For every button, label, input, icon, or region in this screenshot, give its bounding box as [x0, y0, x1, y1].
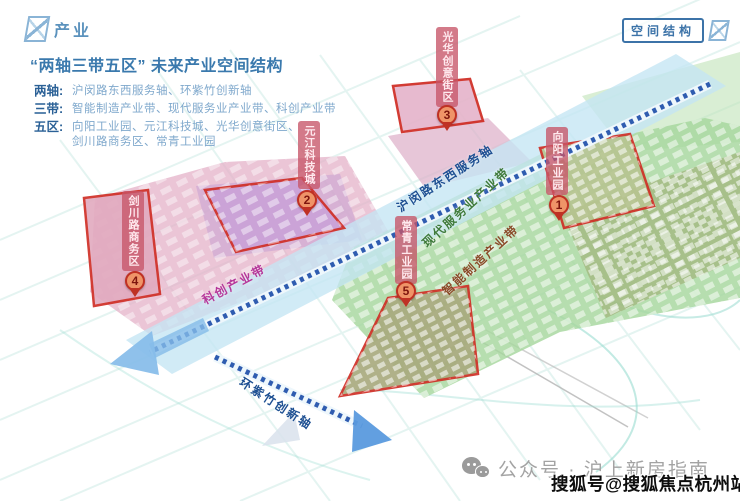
innovation-axis-arrowhead: [352, 410, 392, 452]
brand-logo-icon: [24, 16, 51, 42]
legend-row-zones: 五区: 向阳工业园、元江科技城、光华创意街区、 剑川路商务区、常青工业园: [34, 120, 336, 150]
zone-callout-yuanjiang: 元江科技城: [298, 121, 320, 189]
zone-callout-guanghua: 光华创意街区: [436, 27, 458, 107]
legend-label-belts: 三带:: [34, 102, 72, 117]
zone-callout-xiangyang: 向阳工业园: [546, 127, 568, 195]
zone-callout-changqing: 常青工业园: [395, 216, 417, 284]
legend-text-zones-line1: 向阳工业园、元江科技城、光华创意街区、: [72, 121, 300, 133]
brand-logo-text: 产业: [54, 17, 92, 41]
legend: 两轴: 沪闵路东西服务轴、环紫竹创新轴 三带: 智能制造产业带、现代服务业产业带…: [34, 84, 336, 153]
legend-text-zones-line2: 剑川路商务区、常青工业园: [72, 136, 216, 148]
legend-text-belts: 智能制造产业带、现代服务业产业带、科创产业带: [72, 102, 336, 117]
legend-text-zones: 向阳工业园、元江科技城、光华创意街区、 剑川路商务区、常青工业园: [72, 120, 300, 150]
legend-row-axes: 两轴: 沪闵路东西服务轴、环紫竹创新轴: [34, 84, 336, 99]
page-title: “两轴三带五区” 未来产业空间结构: [30, 52, 283, 76]
wechat-icon: [462, 457, 492, 481]
zone-callout-jianchuan: 剑川路商务区: [122, 191, 144, 271]
header-section-tag: 空间结构: [622, 18, 728, 43]
brand-logo: 产业: [26, 16, 92, 42]
sohu-watermark: 搜狐号@搜狐焦点杭州站: [551, 471, 740, 496]
zone-pin-5: 5: [396, 281, 416, 301]
legend-label-zones: 五区:: [34, 120, 72, 150]
section-tag-label: 空间结构: [622, 18, 704, 43]
zone-pin-1: 1: [549, 195, 569, 215]
zone-pin-2: 2: [297, 190, 317, 210]
zone-pin-3: 3: [437, 105, 457, 125]
zone-pin-4: 4: [125, 271, 145, 291]
header-logo-icon: [708, 20, 730, 41]
legend-text-axes: 沪闵路东西服务轴、环紫竹创新轴: [72, 84, 252, 99]
legend-label-axes: 两轴:: [34, 84, 72, 99]
legend-row-belts: 三带: 智能制造产业带、现代服务业产业带、科创产业带: [34, 102, 336, 117]
slide: 产业 空间结构 “两轴三带五区” 未来产业空间结构 两轴: 沪闵路东西服务轴、环…: [0, 0, 740, 501]
